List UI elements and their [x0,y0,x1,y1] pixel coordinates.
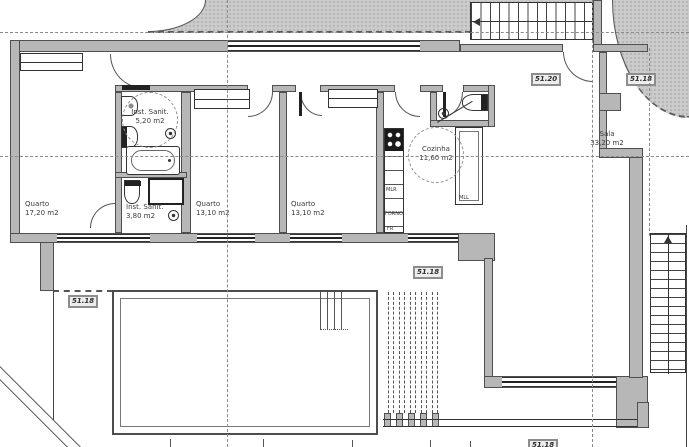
marker-level-sala-upper: 51.20 [531,73,561,86]
axis-line-horizontal-2 [0,156,689,157]
label-sanit2: Inst. Sanit. 3,80 m2 [126,203,163,221]
wall-terrace-stub [40,242,54,291]
axis-line-vertical-3 [649,48,650,236]
wall-corner-step [458,233,495,261]
label-oven: FORNO [385,211,403,217]
deck-board-5 [432,292,438,413]
stairs-upper-rail [471,21,594,22]
toilet-icon-wc [462,94,488,111]
wall-wc-right [488,85,495,127]
window-sala-south [502,377,618,387]
wall-hall-2 [272,85,296,92]
marker-level-east-terrace: 51.18 [626,73,656,86]
wall-sala-right [629,152,643,378]
floor-plan: MLR FORNO FR MLL Quarto 17,20 m2 Inst. S… [0,0,689,447]
door-leaf-bedroom-3 [299,92,302,116]
label-washer: MLR [386,187,397,193]
stairs-direction-arrow-icon [473,18,480,26]
stairs-east [650,233,686,373]
label-quarto2-name: Quarto [196,200,230,209]
bathtub-icon [126,146,180,175]
closet-bedroom-1 [20,53,83,71]
embankment-line-1 [0,364,81,447]
pool-steps [320,292,348,330]
label-quarto1-area: 17,20 m2 [25,209,59,218]
label-fridge: FR [387,226,393,232]
label-sanit2-area: 3,80 m2 [126,212,163,221]
stairs-upper [470,2,593,40]
terrace-edge-dashed [53,290,113,292]
bay-block [599,93,621,111]
door-arc-sala [563,52,593,82]
axis-line-vertical-2 [592,0,593,447]
door-arc-kitchen [395,92,420,117]
window-bedroom-1 [57,234,150,242]
wall-bed2-bed3 [279,92,287,233]
marker-level-patio: 51.18 [413,266,443,279]
dimension-tick-1 [170,439,171,447]
shower-icon [148,178,184,205]
wall-sala-left [484,258,493,380]
label-sala: Sala 33,20 m2 [578,130,636,148]
wall-bed3-kitchen [376,92,384,233]
label-sanit1: Inst. Sanit. 5,20 m2 [118,108,182,126]
label-quarto3-name: Quarto [291,200,325,209]
marker-level-lower-walk: 51.18 [528,439,558,447]
label-quarto2-area: 13,10 m2 [196,209,230,218]
deck-board-1 [388,292,394,413]
wall-top-right [593,44,648,52]
label-quarto2: Quarto 13,10 m2 [196,200,230,218]
marker-level-west-terrace: 51.18 [68,295,98,308]
boundary-right [686,225,687,447]
wall-left [10,40,20,242]
wardrobe-bedroom-2 [194,89,250,109]
dimension-tick-2 [263,439,264,447]
window-top [228,41,420,51]
label-sanit1-area: 5,20 m2 [118,117,182,126]
terrain-top-right [612,0,689,118]
label-quarto1-name: Quarto [25,200,59,209]
label-sanit1-name: Inst. Sanit. [118,108,182,117]
dimension-tick-4 [430,440,431,447]
deck-board-4 [421,292,427,413]
label-sala-area: 33,20 m2 [578,139,636,148]
wall-top-mid [460,44,563,52]
walkway-rail [383,419,649,427]
bath1-shelf [122,85,150,90]
wardrobe-bedroom-3 [328,89,378,108]
dimension-tick-5 [470,441,471,447]
label-dishwasher: MLL [459,195,469,201]
label-sala-name: Sala [578,130,636,139]
axis-line-vertical-1 [227,0,228,447]
terrace-edge-left [53,290,54,420]
door-arc-bedroom-2 [248,92,273,117]
wall-stairs-right [593,0,602,45]
door-arc-ensuite-bath [90,203,115,228]
wall-bath-right [181,92,191,233]
door-arc-bedroom-1 [110,54,142,88]
label-quarto1: Quarto 17,20 m2 [25,200,59,218]
label-cozinha: Cozinha 11,60 m2 [406,145,466,163]
ceiling-light-wc-icon [438,108,449,119]
ceiling-light-bath1-icon [165,128,176,139]
window-bedroom-2 [197,234,255,242]
stairs-east-arrow-icon [664,236,672,243]
ceiling-light-bath2-icon [168,210,179,221]
deck-board-3 [410,292,416,413]
window-kitchen [408,234,462,242]
dimension-tick-3 [352,440,353,447]
door-arc-bedroom-3 [300,92,322,116]
embankment-line-2 [0,377,71,447]
label-cozinha-name: Cozinha [406,145,466,154]
cooktop-icon [385,129,403,151]
toilet-icon-bath2 [124,180,140,204]
label-sanit2-name: Inst. Sanit. [126,203,163,212]
deck-board-2 [399,292,405,413]
label-quarto3-area: 13,10 m2 [291,209,325,218]
label-quarto3: Quarto 13,10 m2 [291,200,325,218]
wall-hall-4 [420,85,443,92]
walkway-end-block [637,402,649,428]
stairs-east-rail [668,234,669,374]
window-bedroom-3 [290,234,342,242]
axis-line-horizontal-1 [0,32,689,33]
pool [112,290,378,435]
